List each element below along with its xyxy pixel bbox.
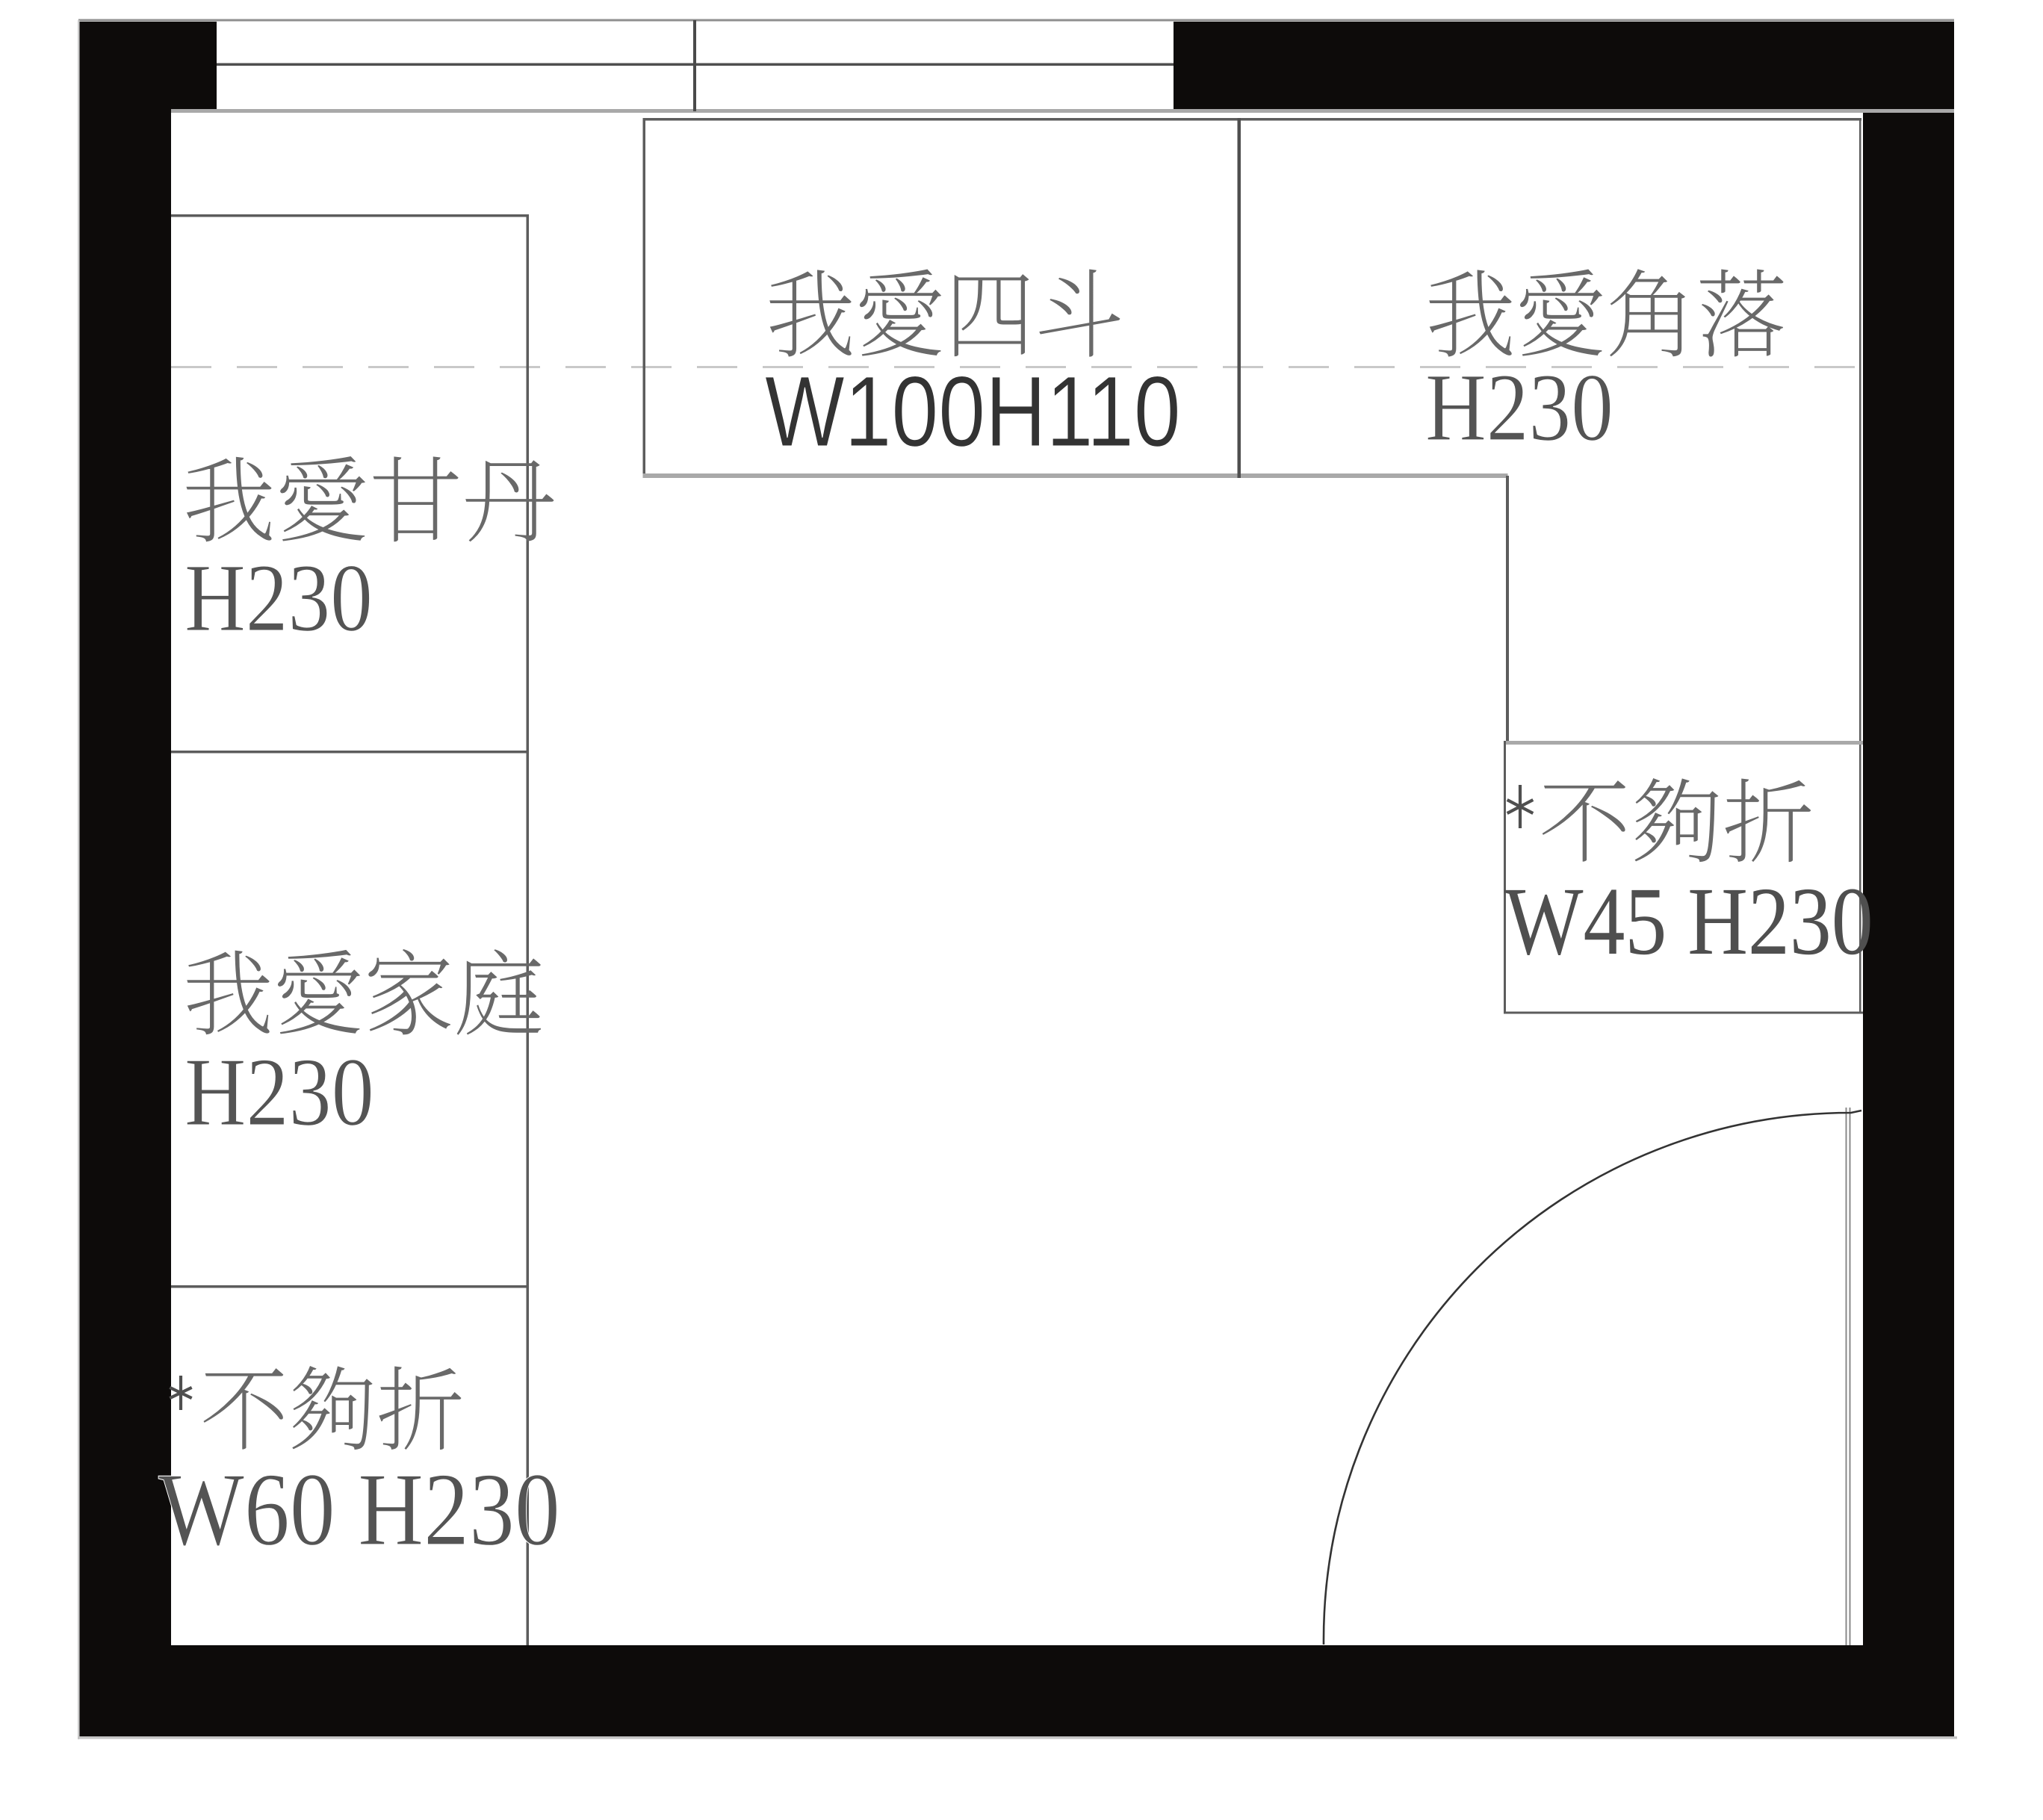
svg-text:W60 H230: W60 H230	[158, 1452, 560, 1568]
svg-text:H230: H230	[185, 544, 373, 652]
svg-text:W100H110: W100H110	[765, 356, 1181, 468]
svg-text:W45 H230: W45 H230	[1504, 868, 1873, 975]
svg-text:H230: H230	[1425, 354, 1613, 462]
svg-text:H230: H230	[185, 1037, 374, 1146]
